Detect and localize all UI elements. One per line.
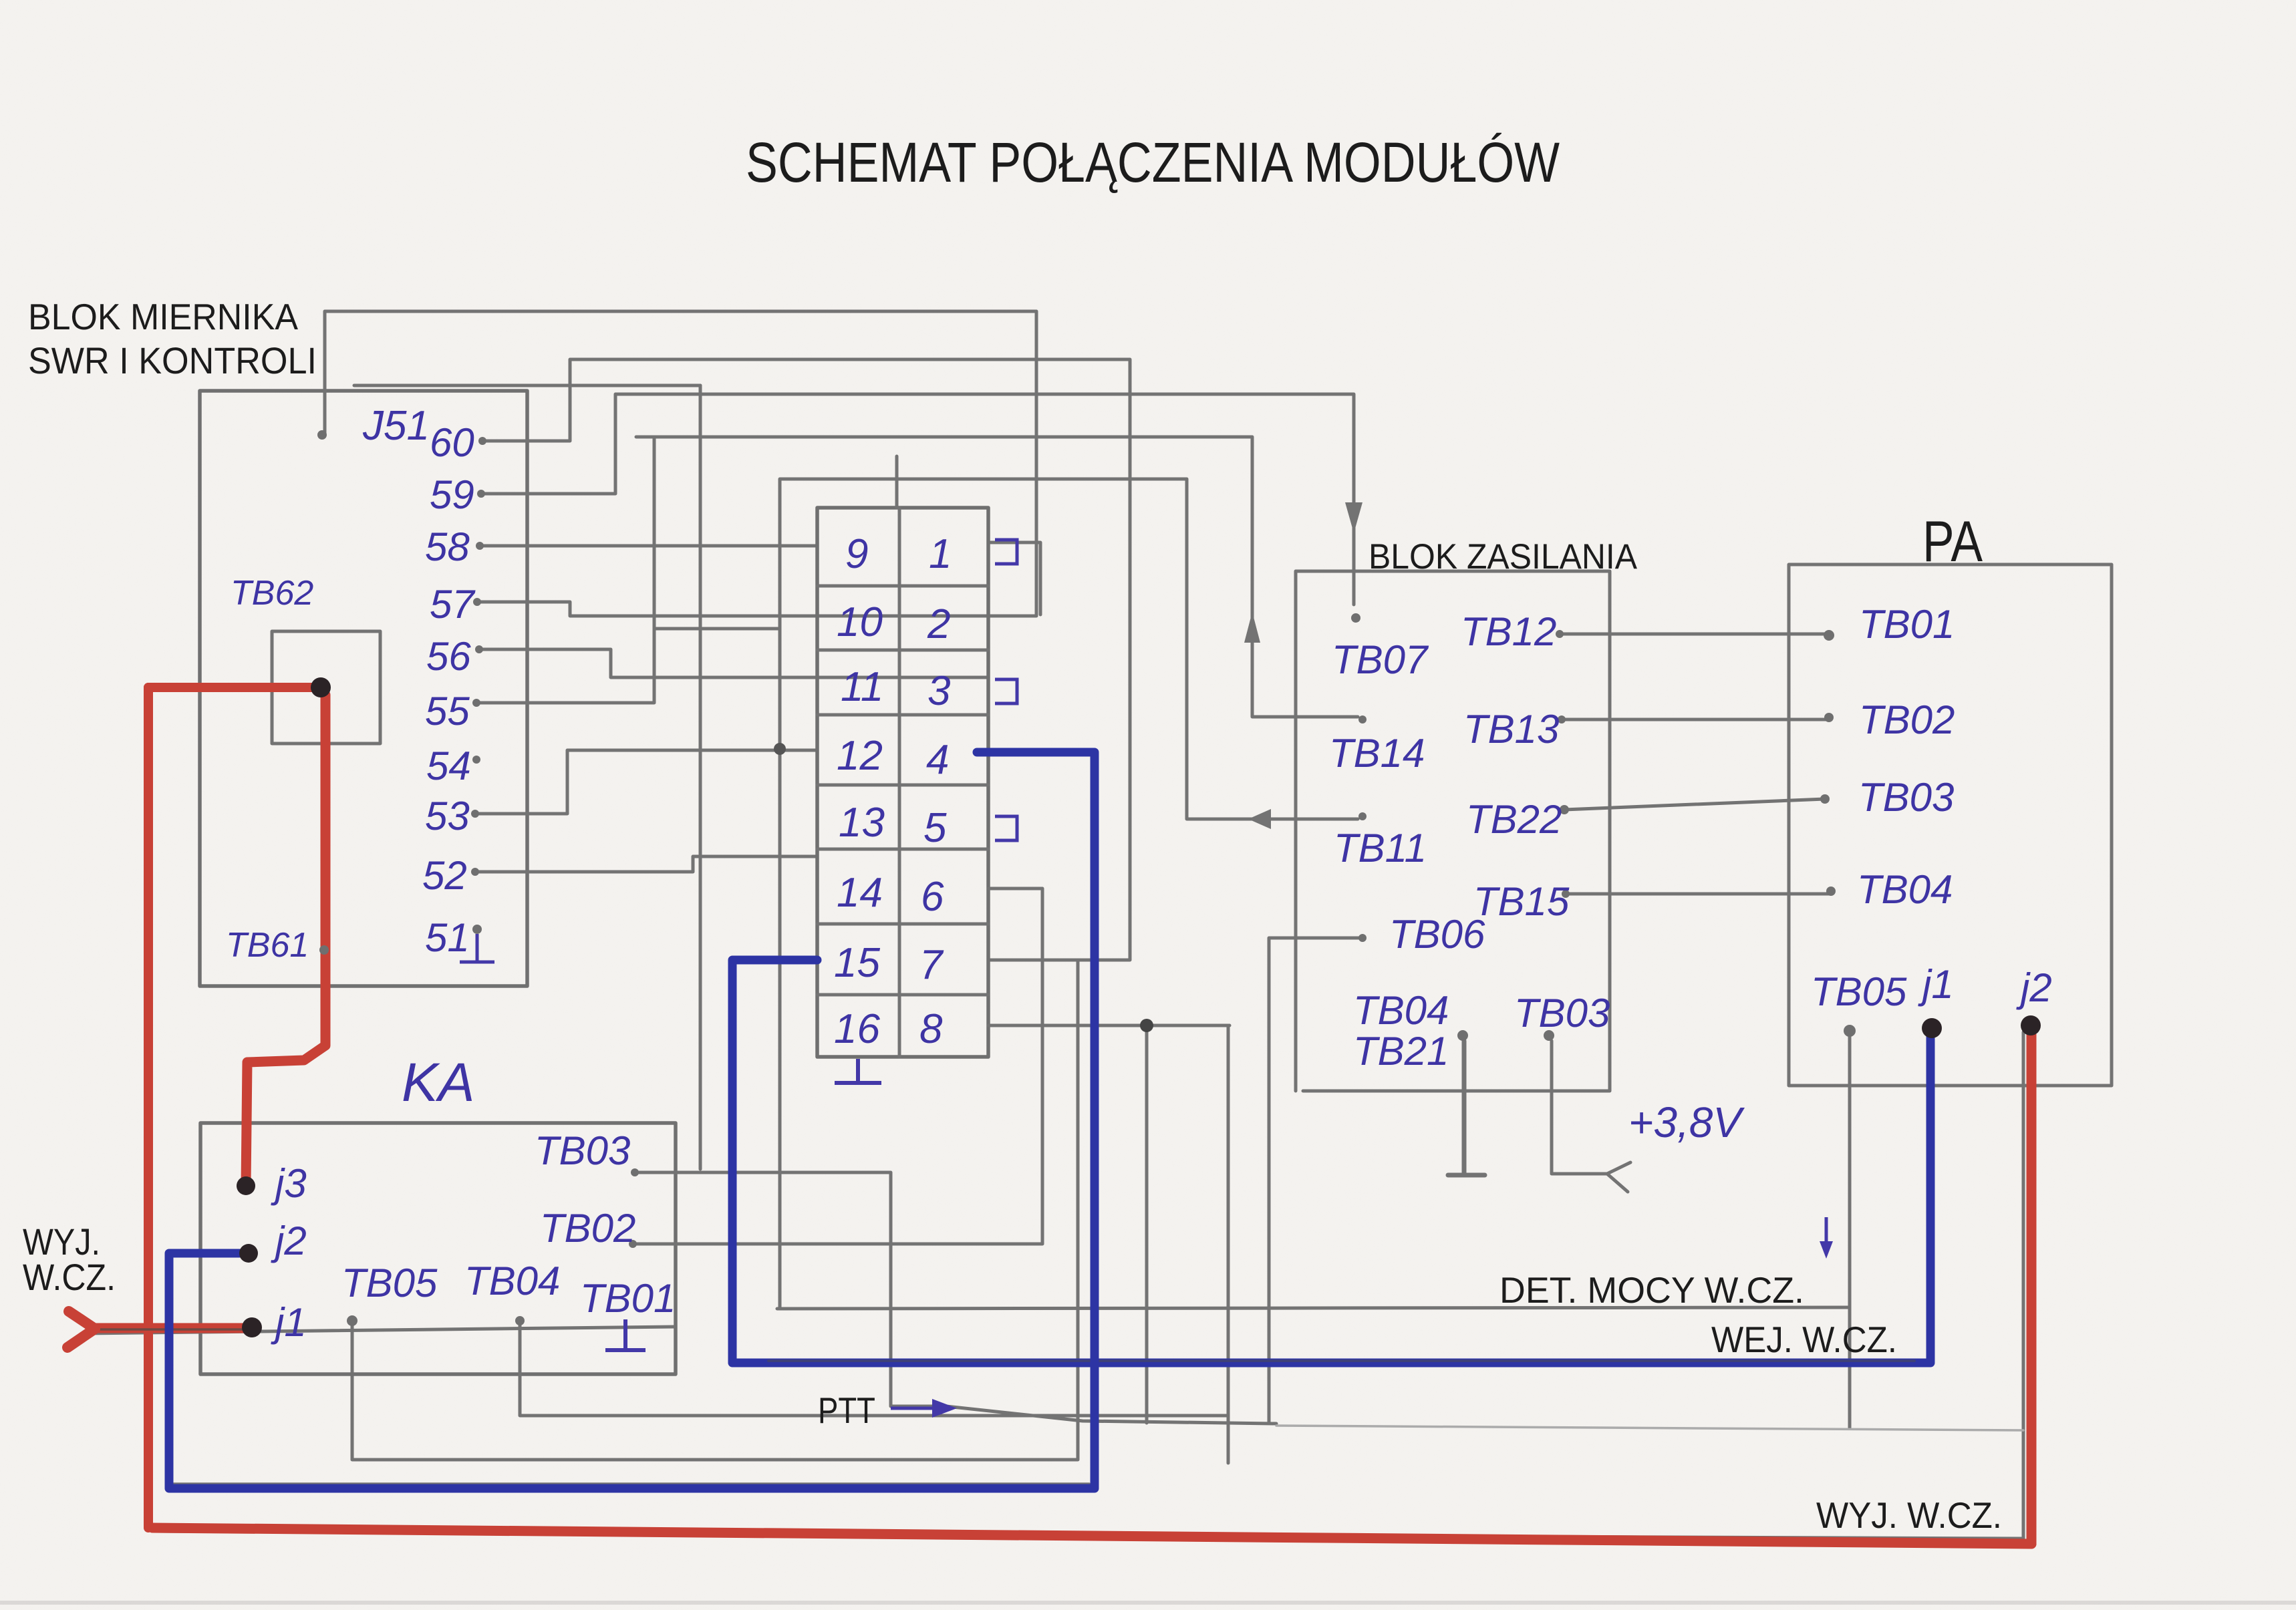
- svg-text:TB62: TB62: [231, 574, 313, 613]
- svg-text:TB07: TB07: [1332, 637, 1429, 682]
- svg-text:WYJ. W.CZ.: WYJ. W.CZ.: [1816, 1494, 2002, 1536]
- svg-text:TB02: TB02: [540, 1206, 635, 1251]
- svg-text:53: 53: [425, 794, 470, 838]
- svg-text:j1: j1: [271, 1300, 307, 1345]
- svg-text:TB03: TB03: [1858, 775, 1954, 820]
- svg-text:TB61: TB61: [226, 926, 309, 965]
- svg-text:J51: J51: [362, 403, 430, 449]
- svg-text:58: 58: [425, 524, 470, 569]
- svg-text:TB12: TB12: [1461, 609, 1556, 654]
- svg-text:BLOK MIERNIKA: BLOK MIERNIKA: [28, 296, 298, 337]
- svg-text:TB22: TB22: [1466, 797, 1562, 842]
- svg-text:+3,8V: +3,8V: [1628, 1098, 1745, 1146]
- svg-text:12: 12: [837, 733, 883, 779]
- svg-text:TB15: TB15: [1473, 879, 1570, 924]
- svg-text:W.CZ.: W.CZ.: [23, 1256, 116, 1298]
- svg-text:14: 14: [837, 870, 883, 916]
- svg-text:PA: PA: [1922, 510, 1983, 574]
- svg-text:TB03: TB03: [535, 1128, 630, 1173]
- svg-text:j2: j2: [2016, 965, 2052, 1010]
- svg-text:52: 52: [422, 853, 467, 898]
- svg-text:8: 8: [919, 1006, 943, 1052]
- svg-text:16: 16: [834, 1006, 880, 1052]
- svg-text:TB04: TB04: [464, 1259, 560, 1303]
- svg-text:TB04: TB04: [1857, 867, 1953, 912]
- svg-text:4: 4: [926, 737, 949, 783]
- svg-text:15: 15: [834, 940, 880, 986]
- svg-text:KA: KA: [402, 1052, 474, 1113]
- svg-text:51: 51: [425, 915, 470, 960]
- svg-text:WEJ. W.CZ.: WEJ. W.CZ.: [1711, 1319, 1897, 1360]
- svg-text:TB01: TB01: [1859, 602, 1955, 647]
- svg-text:SCHEMAT POŁĄCZENIA MODUŁÓW: SCHEMAT POŁĄCZENIA MODUŁÓW: [746, 131, 1560, 194]
- svg-text:60: 60: [430, 420, 474, 465]
- svg-text:10: 10: [837, 599, 883, 645]
- svg-text:TB06: TB06: [1389, 912, 1485, 957]
- svg-text:TB21: TB21: [1353, 1029, 1449, 1074]
- svg-text:TB04: TB04: [1353, 988, 1449, 1033]
- svg-text:TB05: TB05: [1811, 969, 1907, 1014]
- svg-text:BLOK ZASILANIA: BLOK ZASILANIA: [1369, 537, 1638, 577]
- svg-text:j2: j2: [271, 1219, 307, 1263]
- svg-text:j3: j3: [271, 1161, 307, 1206]
- svg-text:13: 13: [839, 800, 885, 846]
- svg-text:TB05: TB05: [341, 1261, 438, 1305]
- svg-text:DET. MOCY W.CZ.: DET. MOCY W.CZ.: [1499, 1269, 1804, 1311]
- svg-text:1: 1: [929, 531, 952, 577]
- svg-text:54: 54: [426, 744, 471, 788]
- svg-text:TB03: TB03: [1514, 991, 1610, 1035]
- svg-text:11: 11: [841, 664, 883, 710]
- svg-text:TB14: TB14: [1329, 731, 1425, 776]
- svg-text:3: 3: [927, 668, 950, 714]
- svg-text:SWR I KONTROLI: SWR I KONTROLI: [28, 339, 317, 381]
- svg-text:TB13: TB13: [1463, 707, 1559, 752]
- svg-text:57: 57: [430, 582, 476, 627]
- svg-text:59: 59: [430, 472, 474, 517]
- svg-text:5: 5: [923, 805, 947, 851]
- svg-text:PTT: PTT: [818, 1390, 875, 1431]
- svg-text:TB11: TB11: [1334, 826, 1427, 870]
- svg-text:TB01: TB01: [580, 1276, 676, 1321]
- svg-text:9: 9: [845, 531, 868, 577]
- svg-text:55: 55: [425, 689, 470, 734]
- svg-text:TB02: TB02: [1859, 697, 1955, 742]
- svg-text:6: 6: [921, 874, 944, 920]
- svg-text:2: 2: [927, 601, 950, 647]
- svg-text:7: 7: [919, 942, 944, 988]
- svg-text:56: 56: [426, 634, 471, 679]
- svg-text:j1: j1: [1918, 962, 1954, 1007]
